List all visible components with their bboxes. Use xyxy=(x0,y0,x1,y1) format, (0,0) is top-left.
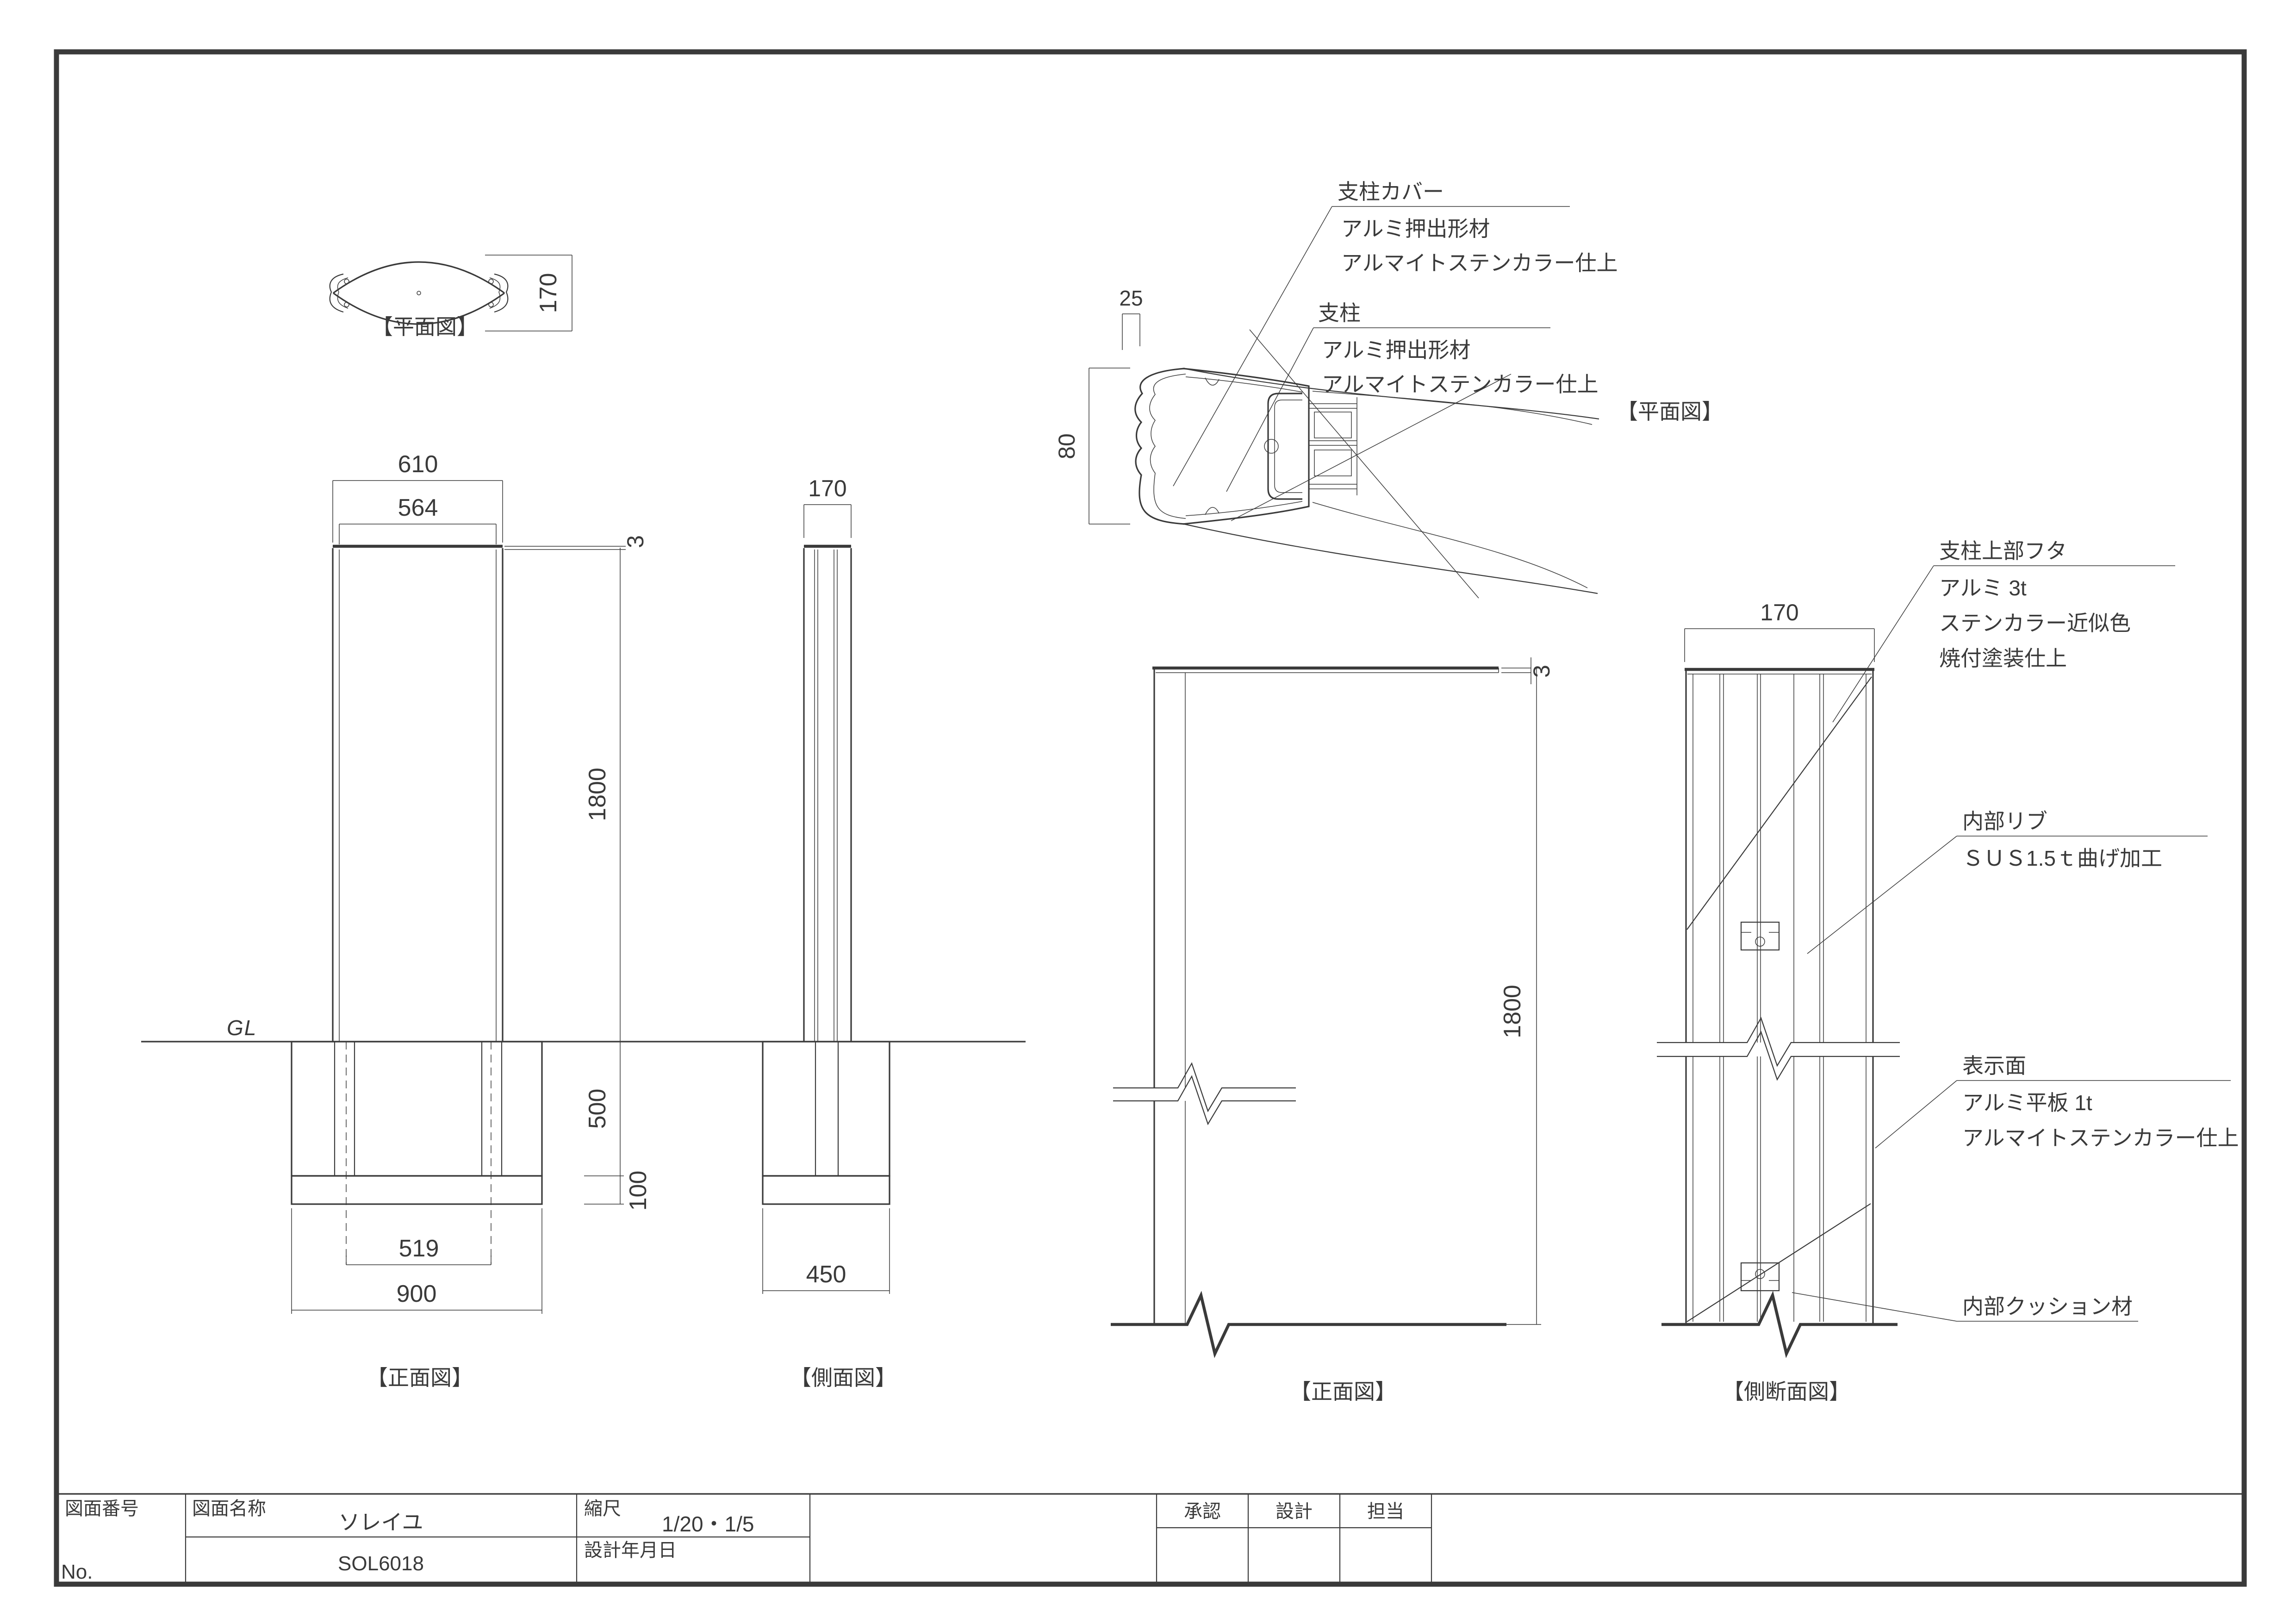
section-internal-lines xyxy=(1693,674,1866,1322)
number-label: 図面番号 xyxy=(65,1499,139,1519)
lens-right-cap xyxy=(494,274,508,312)
fastener-hole xyxy=(344,302,349,307)
panel-skin-bottom-inner xyxy=(1313,502,1587,588)
callout-face: 表示面 アルミ平板 1t アルマイトステンカラー仕上 xyxy=(1875,1054,2239,1150)
dim-side-foundation-width: 450 xyxy=(806,1261,846,1288)
callout-cushion: 内部クッション材 xyxy=(1792,1293,2138,1321)
callout-rib: 内部リブ ＳＵＳ1.5ｔ曲げ加工 xyxy=(1807,809,2208,954)
dim-front-inner-width: 564 xyxy=(398,494,438,521)
dim-section-width: 170 xyxy=(1760,600,1798,625)
post-profile-outer xyxy=(1183,369,1309,524)
dim-detail-cover-width: 25 xyxy=(1119,286,1143,310)
sheet-border xyxy=(56,52,2244,1584)
design-label: 設計 xyxy=(1276,1501,1313,1522)
dim-side-width: 170 xyxy=(808,475,846,501)
callout-face-line1: 表示面 xyxy=(1962,1054,2026,1078)
lens-left-cap xyxy=(330,274,343,312)
scale-label: 縮尺 xyxy=(584,1499,621,1519)
connector-block-top xyxy=(1314,412,1351,438)
side-left-label: 【側面図】 xyxy=(790,1366,896,1390)
callout-cover-line3: アルマイトステンカラー仕上 xyxy=(1341,251,1618,275)
side-outline xyxy=(804,548,851,1042)
center-hole xyxy=(417,291,421,295)
plan-right-label: 【平面図】 xyxy=(1617,400,1723,424)
callout-cap-line2: アルミ 3t xyxy=(1939,576,2027,600)
mid-break-front xyxy=(1113,1063,1296,1124)
dim-right-cap-thickness: 3 xyxy=(1529,665,1555,678)
drawing-name: ソレイユ xyxy=(338,1510,423,1534)
post-right-clear xyxy=(482,1043,502,1175)
post-left-clear xyxy=(335,1043,355,1175)
section-diagonal-top xyxy=(1687,677,1872,930)
cover-profile-inner xyxy=(1150,374,1186,518)
panel-outline xyxy=(333,548,503,1042)
slot-bolt xyxy=(1264,439,1278,453)
post-centerlines xyxy=(346,1042,491,1265)
callout-cap-line4: 焼付塗装仕上 xyxy=(1939,646,2067,670)
dim-ext-cap xyxy=(504,546,626,550)
dim-detail-post-depth: 80 xyxy=(1054,433,1080,459)
rib-clamp-top xyxy=(1741,922,1779,950)
gravel-front xyxy=(292,1176,542,1204)
side-post-clear xyxy=(815,1043,838,1175)
detail-plan-view: 25 80 支柱カバー アルミ押出形材 アルマイトステンカラー仕上 支柱 アルミ… xyxy=(1054,180,1723,598)
dim-bracket-564 xyxy=(339,524,496,544)
callout-cover-line2: アルミ押出形材 xyxy=(1341,217,1490,241)
section-cut-lines xyxy=(1231,330,1511,598)
dim-ext-right-cap xyxy=(1501,657,1531,684)
callout-post: 支柱 アルミ押出形材 アルマイトステンカラー仕上 xyxy=(1226,301,1599,492)
callout-cover: 支柱カバー アルミ押出形材 アルマイトステンカラー仕上 xyxy=(1173,180,1618,486)
dim-bracket-170-section xyxy=(1685,629,1874,662)
dim-bracket-25 xyxy=(1122,314,1140,350)
lens-top-edge xyxy=(333,262,504,293)
plan-left-label: 【平面図】 xyxy=(372,315,478,339)
date-label: 設計年月日 xyxy=(584,1540,677,1561)
connector-block-bottom xyxy=(1314,450,1351,476)
ground-line-section xyxy=(1661,1295,1898,1354)
callout-post-line1: 支柱 xyxy=(1318,301,1361,325)
callout-rib-line1: 内部リブ xyxy=(1962,809,2047,833)
front-view-left: 610 564 3 1800 500 100 519 900 【正面図】 xyxy=(292,451,652,1390)
callout-face-line2: アルミ平板 1t xyxy=(1962,1091,2092,1115)
dim-right-body-height: 1800 xyxy=(1499,985,1526,1038)
callout-post-line3: アルマイトステンカラー仕上 xyxy=(1322,372,1599,396)
callout-rib-line2: ＳＵＳ1.5ｔ曲げ加工 xyxy=(1962,846,2162,870)
front-view-right: 3 1800 【正面図】 xyxy=(1111,657,1555,1404)
post-slot-outer xyxy=(1268,394,1302,499)
title-block: 図面番号 No. 図面名称 ソレイユ SOL6018 縮尺 1/20・1/5 設… xyxy=(56,1494,2244,1584)
gl-label: GL xyxy=(227,1016,257,1040)
scale-value: 1/20・1/5 xyxy=(662,1512,754,1536)
dim-gravel-thickness: 100 xyxy=(625,1171,652,1211)
buried-posts xyxy=(335,1042,502,1176)
drawing-code: SOL6018 xyxy=(338,1552,424,1575)
no-label: No. xyxy=(61,1561,93,1583)
fastener-hole xyxy=(489,279,493,284)
dim-post-centers: 519 xyxy=(399,1235,439,1262)
dim-cap-thickness: 3 xyxy=(622,535,648,548)
fastener-hole xyxy=(489,302,493,307)
section-view-right: 170 【側断面図】 支柱上部フタ アルミ 3t ステンカラー近似色 焼付塗装仕… xyxy=(1657,539,2239,1404)
callout-cover-line1: 支柱カバー xyxy=(1338,180,1444,204)
dim-front-width: 610 xyxy=(398,451,438,478)
side-view-left: 170 450 【側面図】 xyxy=(763,475,896,1390)
cover-profile-outer xyxy=(1135,369,1185,524)
title-block-verticals xyxy=(186,1494,810,1584)
post-profile-inner xyxy=(1186,377,1302,516)
panel-skin-bottom xyxy=(1184,524,1598,593)
callout-cap-line3: ステンカラー近似色 xyxy=(1939,611,2131,635)
callout-cushion-line1: 内部クッション材 xyxy=(1962,1294,2133,1318)
foundation-front xyxy=(292,1042,542,1176)
dim-body-height: 1800 xyxy=(584,768,611,821)
fastener-hole xyxy=(344,279,349,284)
charge-label: 担当 xyxy=(1367,1501,1404,1522)
section-outline xyxy=(1686,669,1873,1324)
ground-line-left: GL xyxy=(141,1016,1026,1042)
callout-cap: 支柱上部フタ アルミ 3t ステンカラー近似色 焼付塗装仕上 xyxy=(1833,539,2175,722)
dim-foundation-width: 900 xyxy=(397,1280,437,1307)
ground-line-right-front xyxy=(1111,1295,1506,1354)
lens-left-cap-inner xyxy=(337,278,348,308)
profile-notches xyxy=(1205,378,1219,515)
front-left-label: 【正面図】 xyxy=(367,1366,473,1390)
approve-label: 承認 xyxy=(1184,1501,1221,1522)
gravel-side xyxy=(763,1176,890,1204)
dim-bracket-80 xyxy=(1089,368,1130,524)
lens-right-cap-inner xyxy=(490,278,500,308)
front-right-label: 【正面図】 xyxy=(1290,1380,1396,1404)
callout-post-line2: アルミ押出形材 xyxy=(1322,338,1471,362)
section-right-label: 【側断面図】 xyxy=(1723,1380,1850,1404)
dim-foundation-depth: 500 xyxy=(584,1089,611,1129)
rib-clamp-bottom xyxy=(1741,1263,1779,1291)
drawing-sheet: 170 【平面図】 610 564 3 1800 500 100 519 900 xyxy=(0,0,2296,1624)
dim-bracket-170-side xyxy=(804,505,851,538)
post-slot-inner xyxy=(1275,400,1302,493)
callout-face-line3: アルマイトステンカラー仕上 xyxy=(1962,1126,2239,1150)
callout-cap-line1: 支柱上部フタ xyxy=(1939,539,2067,563)
name-label: 図面名称 xyxy=(192,1499,266,1519)
side-inner-lines xyxy=(815,550,837,1042)
panel-inner-lines xyxy=(339,550,496,1042)
dim-plan-height: 170 xyxy=(535,273,562,313)
plan-view-left: 170 【平面図】 xyxy=(330,255,572,339)
